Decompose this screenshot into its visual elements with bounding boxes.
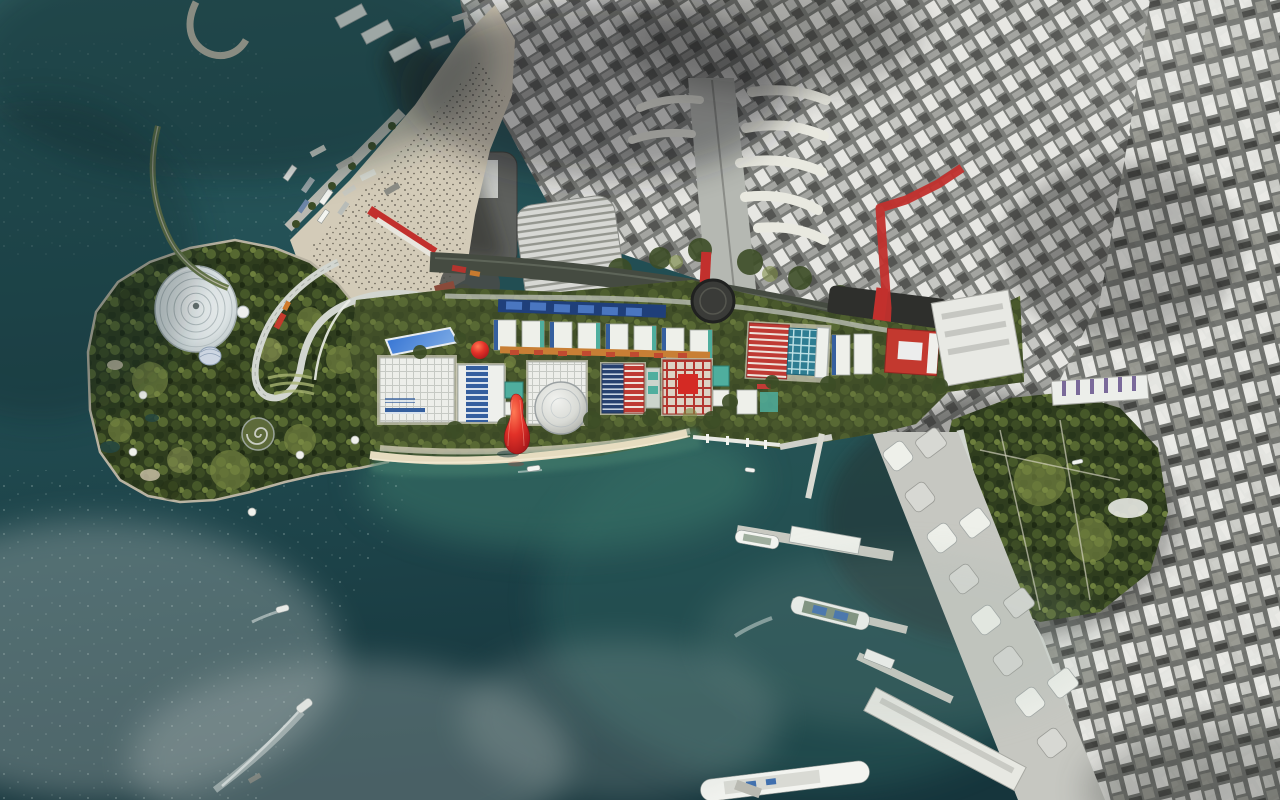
spiral-garden — [242, 418, 274, 450]
white-museum-slab — [931, 290, 1022, 386]
white-pavilion — [854, 334, 872, 374]
pond — [145, 414, 159, 422]
pond — [100, 441, 120, 453]
gravel-pocket — [140, 469, 160, 481]
silver-disc-theatre — [535, 382, 587, 434]
sculpture-reflection — [508, 462, 524, 467]
white-grid-hall-louvers — [385, 408, 425, 414]
aerial-masterplan-image — [0, 0, 1280, 800]
red-striped-hall — [624, 364, 644, 413]
black-drum-hall — [692, 280, 734, 322]
city-shadow-patch — [1000, 160, 1240, 340]
red-courtyard — [678, 374, 698, 394]
red-courtyard-hall — [885, 328, 940, 376]
mixed-striped-hall — [745, 321, 832, 383]
park-aviary — [1108, 498, 1148, 518]
red-dome-pavilion — [471, 341, 489, 359]
blue-striped-hall — [602, 364, 624, 413]
masterplan-svg — [0, 0, 1280, 800]
white-dome-small — [237, 306, 249, 318]
